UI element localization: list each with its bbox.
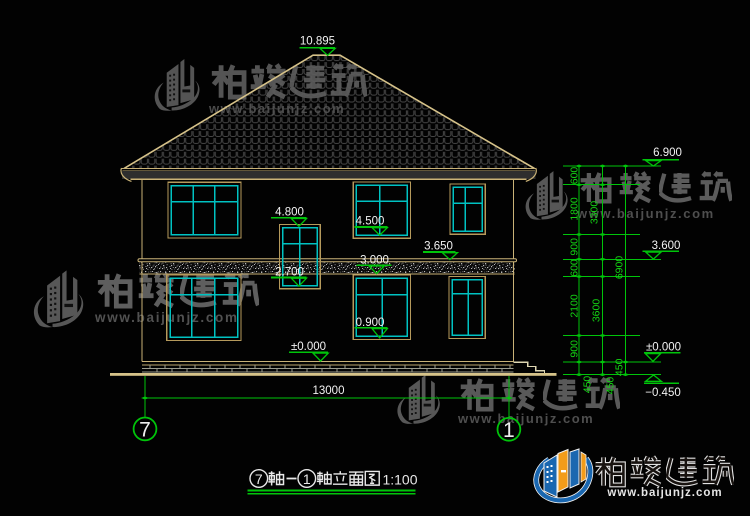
svg-text:900: 900	[569, 238, 581, 256]
svg-text:450: 450	[582, 376, 594, 394]
svg-text:2.700: 2.700	[275, 266, 304, 278]
svg-text:10.895: 10.895	[300, 35, 335, 47]
svg-text:900: 900	[569, 340, 581, 358]
svg-text:4.800: 4.800	[275, 207, 304, 219]
svg-text:6.900: 6.900	[653, 147, 682, 159]
svg-text:600: 600	[569, 167, 581, 185]
svg-text:3.600: 3.600	[652, 240, 681, 252]
svg-text:1800: 1800	[569, 197, 581, 221]
svg-text:600: 600	[569, 259, 581, 277]
svg-text:3600: 3600	[591, 299, 603, 323]
svg-text:−0.450: −0.450	[645, 387, 681, 399]
svg-text:1: 1	[503, 419, 515, 442]
svg-text:1:100: 1:100	[382, 472, 417, 488]
svg-text:www.baijunjz.com: www.baijunjz.com	[457, 411, 594, 426]
svg-text:1: 1	[303, 471, 311, 487]
svg-text:450: 450	[614, 358, 626, 376]
svg-text:±0.000: ±0.000	[646, 341, 681, 353]
svg-text:2100: 2100	[569, 294, 581, 318]
svg-text:www.baijunjz.com: www.baijunjz.com	[208, 101, 345, 116]
svg-text:www.baijunjz.com: www.baijunjz.com	[606, 487, 722, 499]
svg-text:13000: 13000	[313, 385, 345, 397]
svg-text:3300: 3300	[589, 201, 601, 225]
svg-text:3.650: 3.650	[424, 240, 453, 252]
svg-text:7: 7	[139, 419, 151, 442]
svg-text:4.500: 4.500	[356, 216, 385, 228]
svg-text:450: 450	[605, 377, 617, 395]
svg-text:7: 7	[255, 471, 263, 487]
svg-text:6900: 6900	[614, 256, 626, 280]
svg-text:±0.000: ±0.000	[291, 341, 326, 353]
